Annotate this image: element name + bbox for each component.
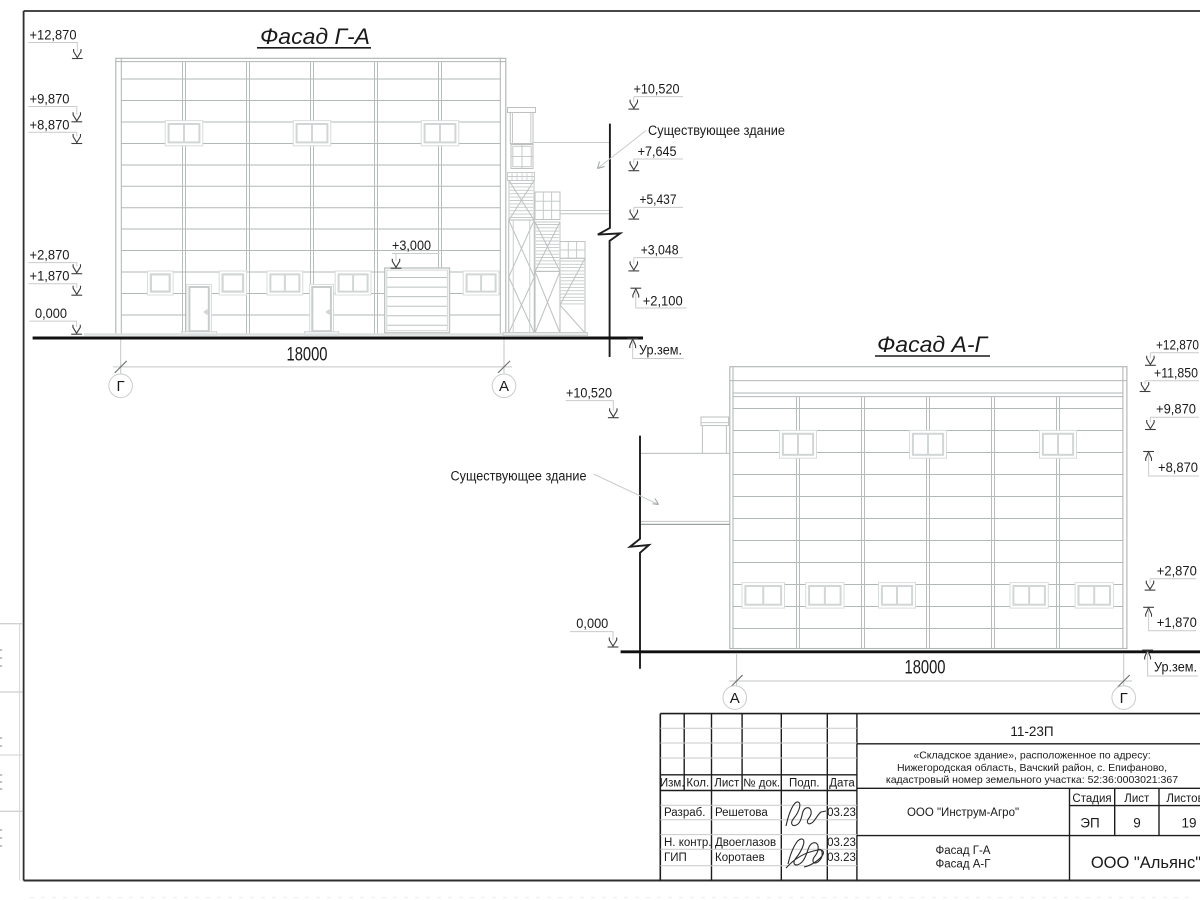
svg-text:+11,850: +11,850 xyxy=(1154,366,1198,381)
svg-text:Г: Г xyxy=(117,378,125,395)
svg-text:+12,870: +12,870 xyxy=(1156,338,1199,353)
svg-text:Разраб.: Разраб. xyxy=(664,807,705,819)
svg-text:+2,870: +2,870 xyxy=(30,247,70,263)
svg-text:11-23П: 11-23П xyxy=(1010,724,1053,739)
svg-text:03.23: 03.23 xyxy=(827,837,856,849)
svg-text:А: А xyxy=(499,378,509,395)
svg-text:+3,000: +3,000 xyxy=(392,237,431,253)
svg-text:Существующее здание: Существующее здание xyxy=(451,469,587,484)
svg-text:Листов: Листов xyxy=(1166,793,1200,805)
svg-text:Ур.зем.: Ур.зем. xyxy=(639,343,682,358)
svg-text:+10,520: +10,520 xyxy=(634,80,680,96)
svg-text:+8,870: +8,870 xyxy=(1158,460,1198,475)
svg-text:Существующее здание: Существующее здание xyxy=(648,123,785,138)
svg-text:0,000: 0,000 xyxy=(35,305,67,321)
svg-text:«Складское здание», расположен: «Складское здание», расположенное по адр… xyxy=(913,750,1150,762)
svg-text:+12,870: +12,870 xyxy=(30,27,77,43)
svg-text:Коротаев: Коротаев xyxy=(715,852,765,864)
svg-text:Лист: Лист xyxy=(714,778,740,790)
svg-text:Нижегородская область, Вачский: Нижегородская область, Вачский район, с.… xyxy=(897,762,1167,774)
svg-text:+3,048: +3,048 xyxy=(641,241,679,257)
svg-text:Решетова: Решетова xyxy=(715,807,768,819)
svg-text:+9,870: +9,870 xyxy=(30,91,70,107)
svg-text:+7,645: +7,645 xyxy=(638,143,677,159)
svg-text:А: А xyxy=(730,690,740,707)
svg-text:Дата: Дата xyxy=(829,778,855,790)
svg-text:Г: Г xyxy=(1120,690,1128,707)
svg-text:Кол.: Кол. xyxy=(686,778,709,790)
svg-text:18000: 18000 xyxy=(287,345,328,366)
svg-text:ЭП: ЭП xyxy=(1080,816,1099,831)
svg-text:+1,870: +1,870 xyxy=(1157,615,1197,630)
svg-text:Изм.: Изм. xyxy=(660,778,685,790)
svg-text:+8,870: +8,870 xyxy=(30,117,70,133)
svg-text:Н. контр.: Н. контр. xyxy=(664,837,711,849)
svg-text:Фасад А-Г: Фасад А-Г xyxy=(877,332,989,357)
svg-text:+2,870: +2,870 xyxy=(1157,564,1197,579)
svg-text:№ док.: № док. xyxy=(743,778,780,790)
svg-text:+10,520: +10,520 xyxy=(566,385,612,401)
svg-text:кадастровый номер земельного у: кадастровый номер земельного участка: 52… xyxy=(886,774,1178,786)
svg-text:Ур.зем.: Ур.зем. xyxy=(1154,660,1197,675)
svg-text:Подп.: Подп. xyxy=(789,778,820,790)
svg-text:03.23: 03.23 xyxy=(827,852,856,864)
svg-text:+5,437: +5,437 xyxy=(640,191,677,207)
svg-text:Фасад Г-А: Фасад Г-А xyxy=(936,845,991,857)
svg-text:19: 19 xyxy=(1181,816,1196,831)
svg-text:Двоеглазов: Двоеглазов xyxy=(715,837,776,849)
svg-text:+1,870: +1,870 xyxy=(30,268,70,284)
svg-text:ГИП: ГИП xyxy=(664,852,687,864)
svg-text:0,000: 0,000 xyxy=(576,615,608,631)
svg-text:03.23: 03.23 xyxy=(827,807,856,819)
svg-text:9: 9 xyxy=(1133,816,1141,831)
svg-text:Фасад Г-А: Фасад Г-А xyxy=(260,24,370,49)
svg-text:+9,870: +9,870 xyxy=(1156,402,1196,417)
svg-text:Лист: Лист xyxy=(1124,793,1150,805)
svg-text:+2,100: +2,100 xyxy=(643,293,683,309)
svg-text:ООО "Альянс": ООО "Альянс" xyxy=(1091,854,1200,872)
svg-text:Фасад А-Г: Фасад А-Г xyxy=(936,859,992,871)
svg-text:ООО "Инструм-Агро": ООО "Инструм-Агро" xyxy=(907,807,1019,819)
svg-text:18000: 18000 xyxy=(905,658,946,679)
svg-text:Стадия: Стадия xyxy=(1072,793,1111,805)
